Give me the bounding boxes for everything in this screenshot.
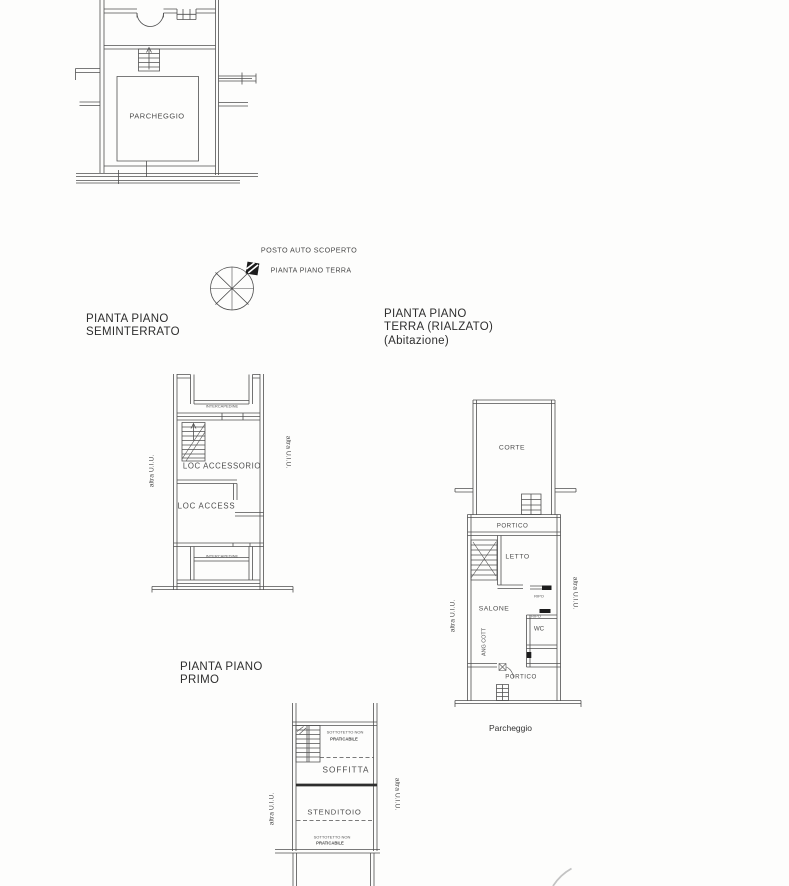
terra-ang-cott-label: ANG COTT bbox=[480, 628, 486, 656]
primo-note-bottom-line1: SOTTOTETTO NON bbox=[314, 834, 351, 839]
primo-side-left-label: altra U.I.U. bbox=[268, 792, 275, 824]
posto-auto-note: POSTO AUTO SCOPERTO bbox=[261, 246, 357, 255]
primo-note-top-line2: PRATICABILE bbox=[330, 736, 358, 741]
stairs-icon bbox=[182, 423, 205, 462]
stairs-icon bbox=[296, 726, 320, 763]
pianta-terra-note: PIANTA PIANO TERRA bbox=[271, 267, 352, 274]
primo-note-bottom-line2: PRATICABILE bbox=[316, 841, 344, 846]
terra-corte-label: CORTE bbox=[499, 444, 525, 451]
title-seminterrato: PIANTA PIANO SEMINTERRATO bbox=[86, 313, 180, 338]
title-terra-line2: TERRA (RIALZATO) bbox=[384, 321, 493, 334]
window-symbol-icon bbox=[219, 73, 257, 85]
garage-room-label: PARCHEGGIO bbox=[129, 112, 184, 121]
title-primo-line2: PRIMO bbox=[180, 674, 263, 687]
terra-side-left-label: altra U.I.U. bbox=[449, 600, 456, 632]
door-arc-icon bbox=[137, 13, 164, 27]
terra-wc-label: WC bbox=[534, 626, 544, 633]
floorplan-sheet: PARCHEGGIO POSTO AUTO SCOPERTO PIANTA PI… bbox=[0, 0, 789, 886]
title-seminterrato-line2: SEMINTERRATO bbox=[86, 326, 180, 339]
seminterrato-room2-label: LOC ACCESS bbox=[178, 501, 236, 510]
garage-plan-lines bbox=[76, 0, 259, 184]
terra-parcheggio-caption: Parcheggio bbox=[489, 723, 532, 733]
stairs-icon bbox=[139, 48, 160, 72]
pen-mark bbox=[553, 869, 572, 886]
title-terra-line1: PIANTA PIANO bbox=[384, 308, 493, 321]
title-seminterrato-line1: PIANTA PIANO bbox=[86, 313, 180, 326]
seminterrato-side-left-label: altra U.I.U. bbox=[149, 455, 156, 487]
stairs-icon bbox=[471, 540, 497, 580]
terra-ripo2-label: RIPO bbox=[531, 613, 541, 618]
primo-soffitta-label: SOFFITTA bbox=[323, 765, 370, 774]
stairs-icon bbox=[522, 494, 542, 515]
terra-side-right-label: altra U.I.U. bbox=[571, 576, 578, 608]
seminterrato-room1-label: LOC ACCESSORIO bbox=[183, 462, 261, 471]
terra-letto-label: LETTO bbox=[505, 554, 529, 561]
title-terra: PIANTA PIANO TERRA (RIALZATO) (Abitazion… bbox=[384, 308, 493, 348]
terra-portico-bottom-label: PORTICO bbox=[505, 674, 537, 681]
floorplan-drawing bbox=[0, 0, 789, 886]
primo-stenditoio-label: STENDITOIO bbox=[307, 808, 361, 817]
seminterrato-note-bottom: INTERCAPEDINE bbox=[205, 554, 237, 559]
north-marker-icon bbox=[246, 262, 260, 276]
primo-note-top-line1: SOTTOTETTO NON bbox=[326, 729, 363, 734]
title-terra-line3: (Abitazione) bbox=[384, 335, 493, 348]
seminterrato-note-top: INTERCAPEDINE bbox=[205, 404, 237, 409]
stairs-icon bbox=[497, 685, 509, 701]
seminterrato-side-right-label: altra U.I.U. bbox=[284, 436, 291, 468]
terra-salone-label: SALONE bbox=[479, 605, 510, 612]
terra-ripo1-label: RIPO bbox=[534, 593, 544, 598]
title-primo: PIANTA PIANO PRIMO bbox=[180, 661, 263, 686]
title-primo-line1: PIANTA PIANO bbox=[180, 661, 263, 674]
primo-side-right-label: altra U.I.U. bbox=[393, 778, 400, 810]
window-symbol-icon bbox=[177, 9, 196, 20]
terra-portico-top-label: PORTICO bbox=[497, 523, 529, 530]
